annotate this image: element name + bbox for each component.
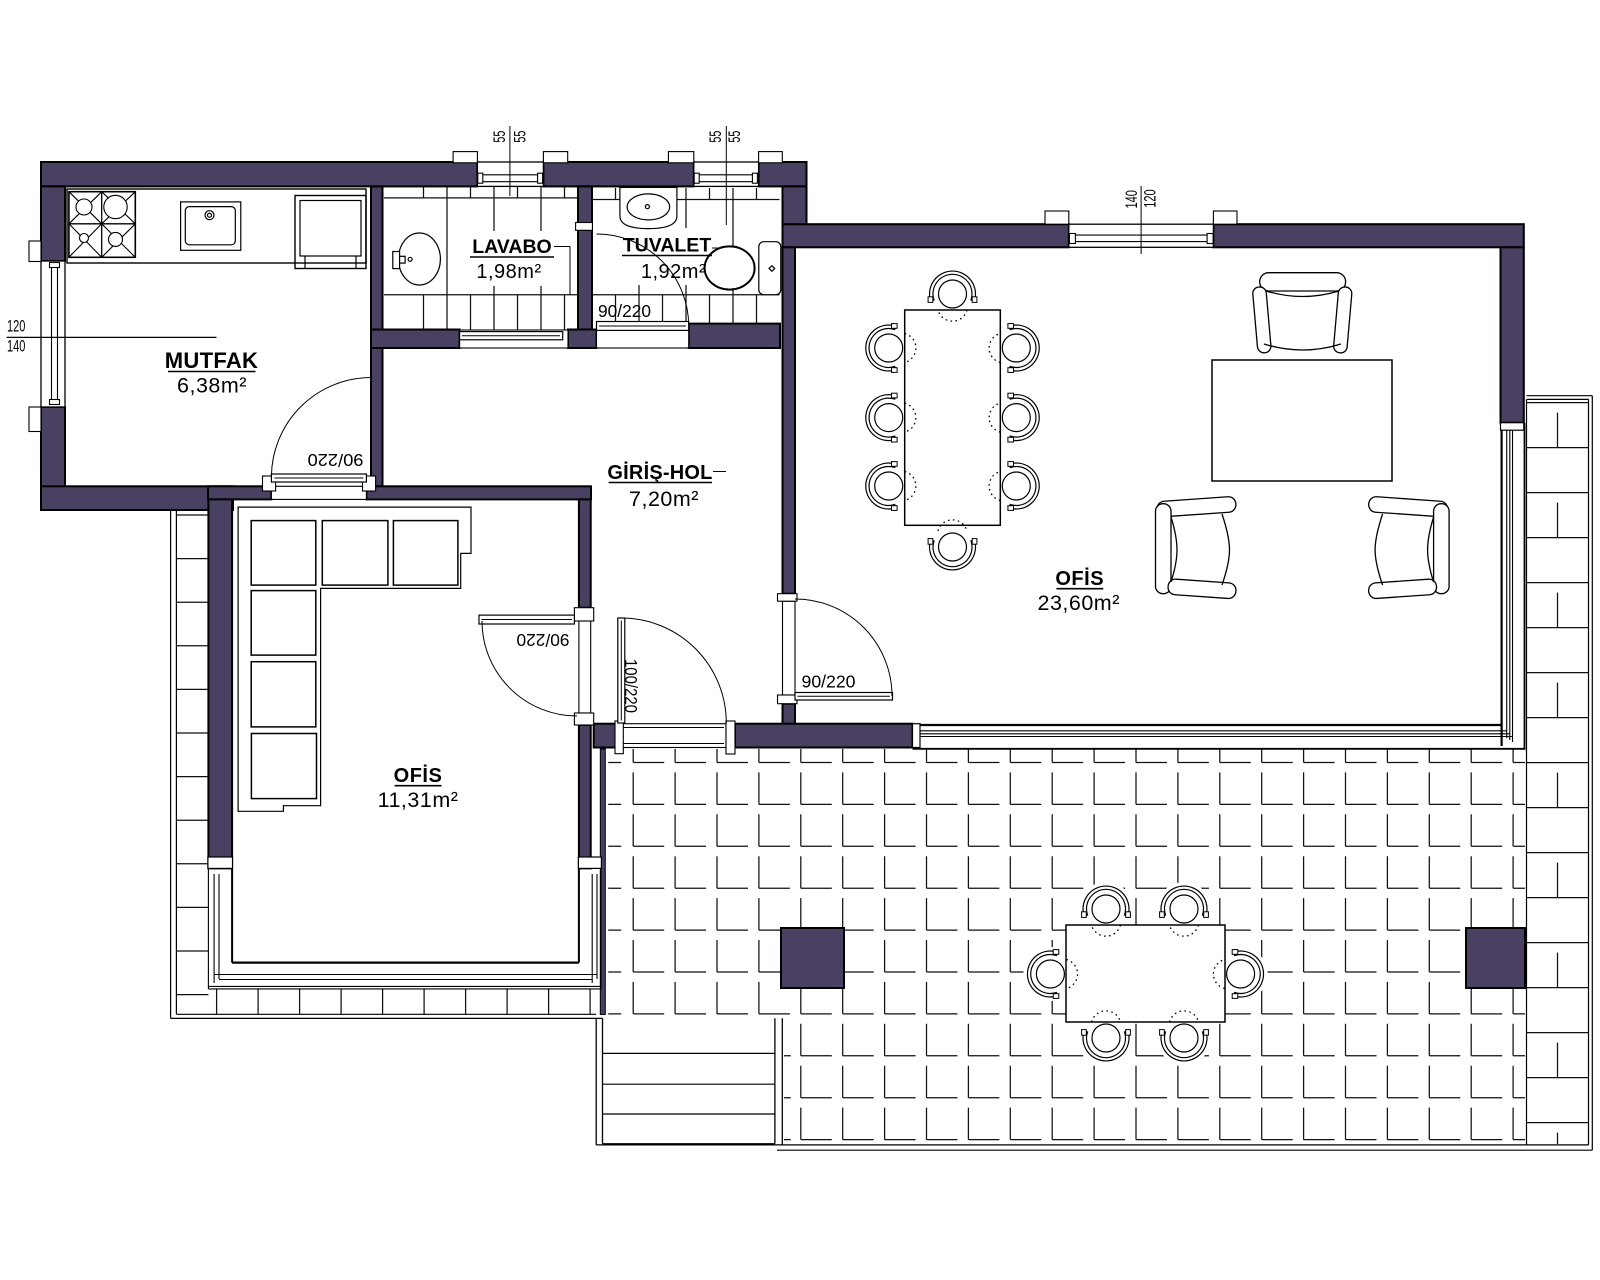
svg-text:LAVABO: LAVABO	[472, 236, 551, 258]
svg-text:23,60m²: 23,60m²	[1038, 591, 1120, 615]
svg-text:120: 120	[7, 317, 25, 336]
svg-text:90/220: 90/220	[307, 450, 363, 470]
svg-text:55: 55	[706, 131, 725, 143]
svg-text:OFİS: OFİS	[394, 764, 443, 787]
svg-text:140: 140	[1122, 190, 1141, 208]
svg-text:1,92m²: 1,92m²	[641, 261, 706, 283]
svg-text:90/220: 90/220	[516, 630, 569, 650]
svg-text:140: 140	[7, 337, 25, 356]
svg-text:OFİS: OFİS	[1055, 567, 1104, 590]
svg-text:100/220: 100/220	[621, 659, 641, 713]
svg-text:55: 55	[510, 131, 529, 143]
svg-text:90/220: 90/220	[598, 301, 651, 321]
svg-text:55: 55	[725, 131, 744, 143]
svg-text:7,20m²: 7,20m²	[629, 487, 699, 511]
svg-text:120: 120	[1140, 189, 1159, 207]
svg-text:6,38m²: 6,38m²	[177, 374, 247, 398]
svg-text:MUTFAK: MUTFAK	[165, 348, 258, 373]
svg-text:GİRİŞ-HOL: GİRİŞ-HOL	[607, 461, 712, 484]
svg-text:11,31m²: 11,31m²	[378, 788, 459, 812]
svg-text:90/220: 90/220	[802, 672, 856, 692]
svg-text:1,98m²: 1,98m²	[476, 261, 541, 283]
svg-text:TUVALET: TUVALET	[623, 235, 712, 257]
svg-text:55: 55	[490, 131, 509, 143]
